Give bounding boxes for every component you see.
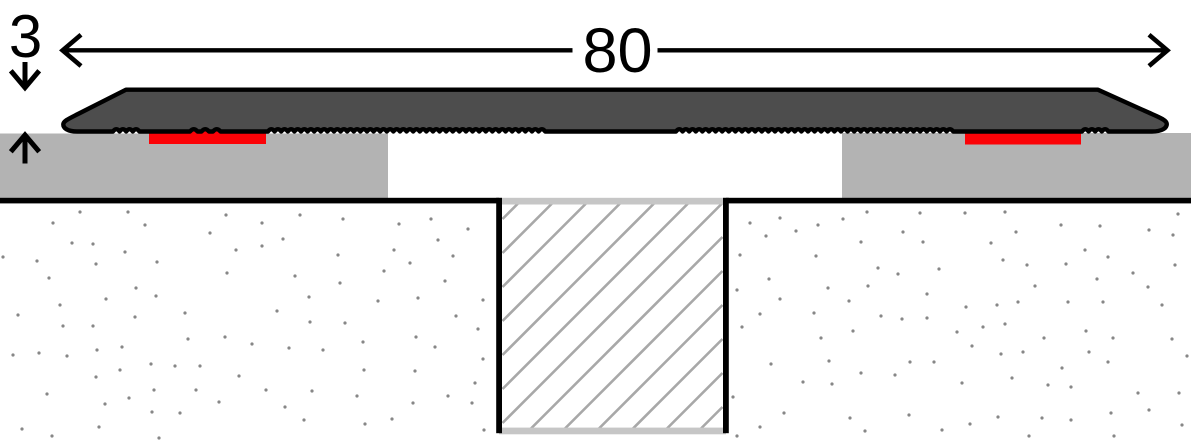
svg-text:80: 80 — [582, 16, 652, 86]
svg-text:3: 3 — [9, 3, 42, 70]
